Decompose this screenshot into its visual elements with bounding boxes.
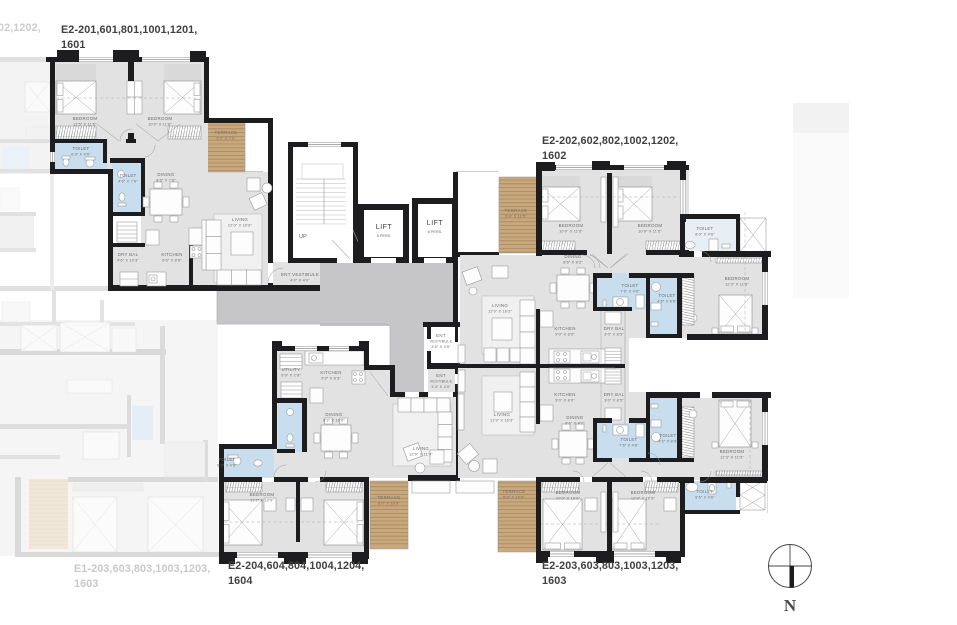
svg-text:BEDROOM: BEDROOM [73, 116, 98, 121]
svg-text:11’9” X 16’3”: 11’9” X 16’3” [488, 310, 512, 314]
svg-text:8’6” X 7’6”: 8’6” X 7’6” [156, 179, 176, 183]
svg-text:LIVING: LIVING [232, 217, 248, 222]
svg-text:9’9” X 2’8”: 9’9” X 2’8” [281, 374, 301, 378]
svg-text:E2-203,603,803,1003,1203,: E2-203,603,803,1003,1203, [542, 560, 678, 572]
svg-text:8’6” X 8’6”: 8’6” X 8’6” [162, 259, 182, 263]
svg-text:DINING: DINING [566, 415, 583, 420]
svg-text:10’0” X 11’6”: 10’0” X 11’6” [559, 230, 583, 234]
svg-text:8’6” X 8’2”: 8’6” X 8’2” [565, 422, 585, 426]
svg-text:12’3” X 11’9”: 12’3” X 11’9” [720, 456, 744, 460]
svg-text:TOILET: TOILET [119, 173, 136, 178]
svg-text:9’0” X 8’0”: 9’0” X 8’0” [555, 333, 575, 337]
svg-text:7’6” X 4’6”: 7’6” X 4’6” [619, 444, 639, 448]
svg-text:BEDROOM: BEDROOM [631, 490, 656, 495]
svg-text:LIVING: LIVING [492, 303, 508, 308]
svg-text:TOILET: TOILET [659, 433, 676, 438]
svg-text:1603: 1603 [74, 578, 98, 590]
svg-text:1603: 1603 [542, 575, 566, 587]
svg-text:TOILET: TOILET [72, 146, 89, 151]
svg-text:4’6” X 7’6”: 4’6” X 7’6” [118, 180, 138, 184]
svg-text:ENT VESTIBULE: ENT VESTIBULE [281, 272, 319, 277]
svg-text:UP: UP [299, 234, 307, 240]
svg-text:DRY BAL: DRY BAL [118, 252, 139, 257]
svg-text:6’0” X 4’6”: 6’0” X 4’6” [217, 464, 237, 468]
svg-text:E1-203,603,803,1003,1203,: E1-203,603,803,1003,1203, [74, 563, 210, 575]
svg-text:5’9” X 10’9”: 5’9” X 10’9” [503, 496, 525, 500]
svg-text:BEDROOM: BEDROOM [148, 116, 173, 121]
svg-text:ENT: ENT [436, 333, 446, 338]
svg-text:8’6” X 4’6”: 8’6” X 4’6” [695, 496, 715, 500]
svg-text:8’6” X 8’2”: 8’6” X 8’2” [563, 261, 583, 265]
svg-text:1601: 1601 [61, 39, 85, 51]
svg-text:BEDROOM: BEDROOM [559, 223, 584, 228]
svg-text:TOILET: TOILET [696, 226, 713, 231]
svg-text:DINING: DINING [564, 254, 581, 259]
svg-text:3’4” X 4’0”: 3’4” X 4’0” [431, 385, 451, 389]
svg-text:LIFT: LIFT [376, 224, 393, 231]
svg-text:5’9” X 11’5”: 5’9” X 11’5” [505, 215, 527, 219]
svg-text:3’0” X 8’5”: 3’0” X 8’5” [604, 399, 624, 403]
svg-text:VESTIBULE: VESTIBULE [430, 380, 453, 384]
svg-text:10’9” X 10’9”: 10’9” X 10’9” [631, 497, 656, 501]
svg-text:12’9” X 11’9”: 12’9” X 11’9” [409, 453, 433, 457]
svg-text:E2-201,601,801,1001,1201,: E2-201,601,801,1001,1201, [61, 24, 197, 36]
svg-text:6 PERS.: 6 PERS. [377, 234, 392, 238]
svg-text:9’0” X 8’0”: 9’0” X 8’0” [555, 399, 575, 403]
svg-text:5’9” X 7’6”: 5’9” X 7’6” [216, 137, 236, 141]
svg-text:TOILET: TOILET [620, 437, 637, 442]
svg-text:BEDROOM: BEDROOM [725, 276, 750, 281]
svg-text:TOILET: TOILET [658, 293, 675, 298]
svg-text:11’9” X 16’3”: 11’9” X 16’3” [490, 419, 514, 423]
svg-text:DRY BAL: DRY BAL [604, 326, 625, 331]
svg-text:8 PERS.: 8 PERS. [428, 230, 443, 234]
svg-text:DRY BAL: DRY BAL [604, 392, 625, 397]
svg-text:ENT: ENT [436, 373, 446, 378]
svg-text:TERRACE: TERRACE [502, 489, 525, 494]
svg-text:KITCHEN: KITCHEN [161, 252, 182, 257]
svg-text:VESTIBULE: VESTIBULE [430, 340, 453, 344]
svg-text:TOILET: TOILET [218, 457, 235, 462]
svg-text:4’6” X 8’6”: 4’6” X 8’6” [657, 300, 677, 304]
svg-text:E2-202,602,802,1002,1202,: E2-202,602,802,1002,1202, [542, 135, 678, 147]
svg-text:TERRACE: TERRACE [214, 130, 237, 135]
svg-text:1604: 1604 [228, 575, 252, 587]
svg-text:6’3” X 4’6”: 6’3” X 4’6” [71, 153, 91, 157]
svg-text:TERRACE: TERRACE [504, 208, 527, 213]
svg-text:KITCHEN: KITCHEN [320, 370, 341, 375]
svg-text:7’6” X 4’6”: 7’6” X 4’6” [620, 290, 640, 294]
svg-text:12’3” X 11’9”: 12’3” X 11’9” [725, 283, 749, 287]
svg-text:4’0” X 4’0”: 4’0” X 4’0” [290, 279, 310, 283]
svg-text:BEDROOM: BEDROOM [250, 492, 275, 497]
svg-text:LIVING: LIVING [413, 446, 429, 451]
svg-text:DINING: DINING [325, 412, 342, 417]
svg-text:10’0” X 11’6”: 10’0” X 11’6” [148, 123, 172, 127]
svg-text:1602: 1602 [542, 150, 566, 162]
svg-text:3’6” X 3’6”: 3’6” X 3’6” [431, 345, 451, 349]
svg-text:KITCHEN: KITCHEN [554, 326, 575, 331]
svg-text:LIFT: LIFT [427, 220, 444, 227]
svg-text:4’6” X 8’6”: 4’6” X 8’6” [658, 440, 678, 444]
svg-text:BEDROOM: BEDROOM [556, 490, 581, 495]
svg-text:11’5” X 11’6”: 11’5” X 11’6” [73, 123, 97, 127]
svg-text:UTILITY: UTILITY [282, 367, 300, 372]
svg-text:8’3” X 10’6”: 8’3” X 10’6” [323, 419, 345, 423]
svg-text:9’9” X 8’3”: 9’9” X 8’3” [321, 377, 341, 381]
svg-text:LIVING: LIVING [494, 412, 510, 417]
svg-text:N: N [784, 596, 797, 615]
svg-text:12’0” X 16’6”: 12’0” X 16’6” [228, 224, 253, 228]
svg-text:DINING: DINING [157, 172, 174, 177]
svg-text:6’0” X 10’8”: 6’0” X 10’8” [378, 502, 400, 506]
svg-text:BEDROOM: BEDROOM [638, 223, 663, 228]
svg-text:8’0” X 4’6”: 8’0” X 4’6” [695, 233, 715, 237]
svg-text:10’9” X 11’6”: 10’9” X 11’6” [638, 230, 662, 234]
svg-text:KITCHEN: KITCHEN [554, 392, 575, 397]
svg-text:TOILET: TOILET [696, 489, 713, 494]
svg-text:11’2” X 10’9”: 11’2” X 10’9” [250, 499, 274, 503]
svg-text:3’0” X 8’5”: 3’0” X 8’5” [604, 333, 624, 337]
svg-text:10’0” X 10’9”: 10’0” X 10’9” [556, 497, 581, 501]
svg-text:TOILET: TOILET [621, 283, 638, 288]
svg-text:02,1202,: 02,1202, [0, 22, 41, 34]
svg-text:BEDROOM: BEDROOM [720, 449, 745, 454]
svg-text:E2-204,604,804,1004,1204,: E2-204,604,804,1004,1204, [228, 560, 364, 572]
svg-text:TERRACE: TERRACE [377, 495, 400, 500]
svg-text:4’6” X 10’3”: 4’6” X 10’3” [117, 259, 139, 263]
